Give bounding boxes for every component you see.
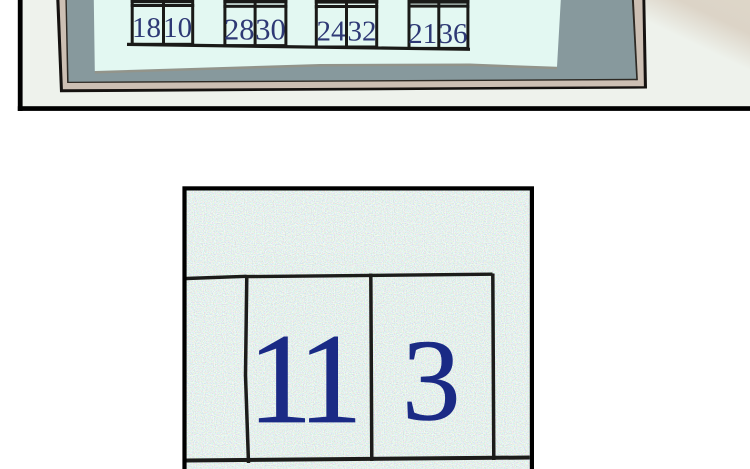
- svg-text:36: 36: [439, 18, 468, 50]
- svg-text:11: 11: [248, 307, 355, 450]
- svg-text:10: 10: [163, 12, 192, 44]
- svg-text:3: 3: [402, 317, 461, 446]
- svg-text:28: 28: [224, 13, 255, 47]
- svg-text:24: 24: [317, 16, 347, 48]
- svg-text:21: 21: [408, 18, 437, 50]
- svg-text:18: 18: [132, 12, 161, 44]
- svg-text:30: 30: [255, 13, 286, 47]
- svg-text:32: 32: [348, 16, 377, 48]
